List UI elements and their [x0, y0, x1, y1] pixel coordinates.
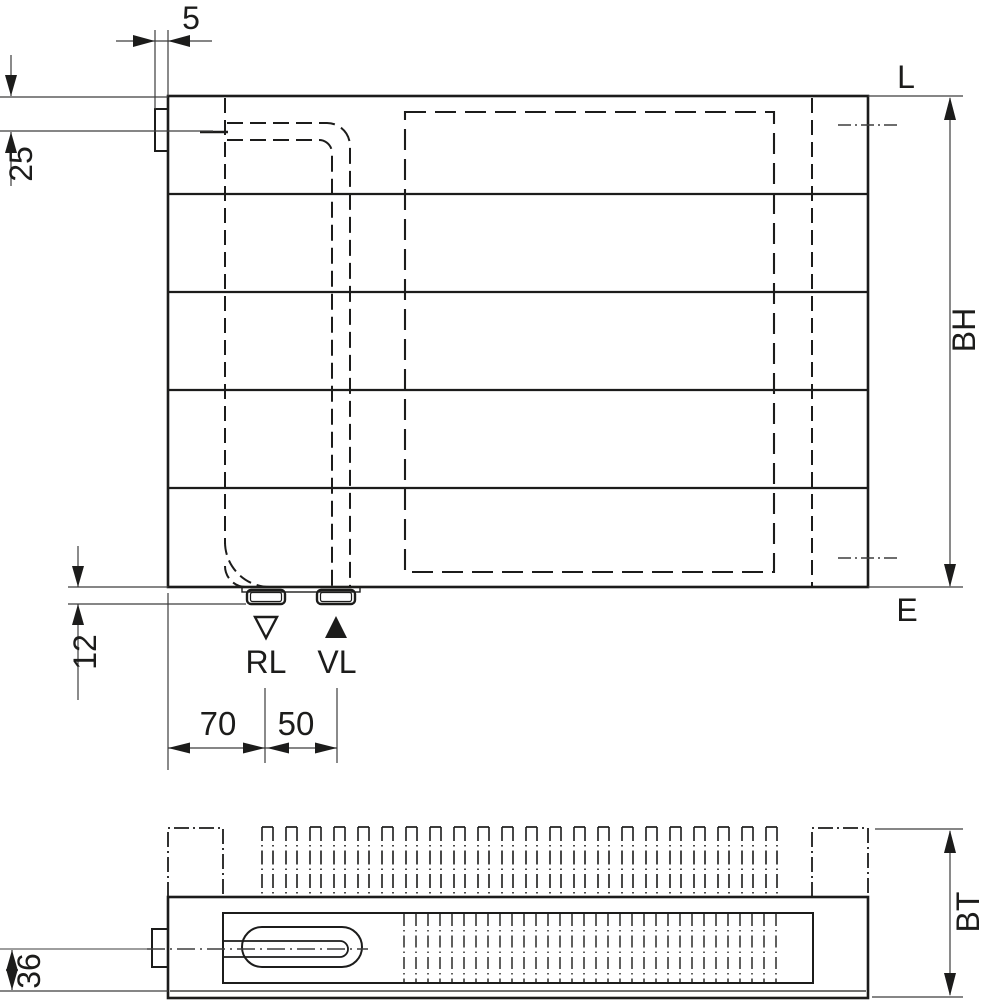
supply-stub: [317, 590, 355, 604]
dim-edge-to-return-value: 70: [200, 705, 237, 742]
plan-view: 36 BT: [0, 827, 986, 998]
depth-label: BT: [950, 892, 986, 933]
supply-port-label: VL: [317, 644, 356, 680]
plan-side-stub: [152, 929, 168, 967]
dim-stub-height-value: 12: [67, 634, 103, 670]
dim-bracket-width-value: 5: [182, 0, 200, 36]
dim-center-to-face: 36: [0, 950, 168, 991]
front-view: RL VL 5 25 12: [0, 0, 982, 770]
top-edge-label: L: [897, 59, 915, 95]
dim-inlet-offset: 25: [0, 55, 213, 186]
dim-height-BH: L E BH: [868, 59, 982, 628]
radiator-dimension-drawing: RL VL 5 25 12: [0, 0, 1000, 1000]
bracket-projection-left: [168, 828, 223, 897]
dim-connection-spacing: 70 50: [168, 593, 337, 770]
dim-return-to-supply-value: 50: [278, 705, 315, 742]
height-label: BH: [946, 308, 982, 352]
plan-water-channel: [223, 913, 813, 983]
drawing-svg: RL VL 5 25 12: [0, 0, 1000, 1000]
hidden-supply-pipe: [227, 123, 350, 586]
hidden-inner-panel-outline: [405, 112, 774, 572]
bottom-edge-label: E: [896, 592, 917, 628]
dim-bracket-width: 5: [116, 0, 212, 109]
hidden-return-elbow: [225, 542, 270, 587]
wall-bracket-tab: [155, 109, 168, 151]
dim-inlet-offset-value: 25: [3, 146, 39, 182]
dim-depth-BT: BT: [872, 829, 986, 997]
supply-flow-icon: [325, 616, 347, 638]
header-chamber: [242, 927, 362, 967]
dim-center-to-face-value: 36: [11, 953, 47, 989]
return-port-label: RL: [246, 644, 287, 680]
dim-stub-height: 12: [67, 546, 246, 700]
bracket-projection-right: [812, 828, 868, 897]
panel-joint-lines: [168, 194, 868, 488]
radiator-body-outline: [168, 96, 868, 587]
convector-fins-outer: [262, 827, 777, 896]
return-flow-icon: [255, 617, 277, 638]
convector-fins-inner: [404, 914, 776, 982]
return-stub: [247, 590, 285, 604]
